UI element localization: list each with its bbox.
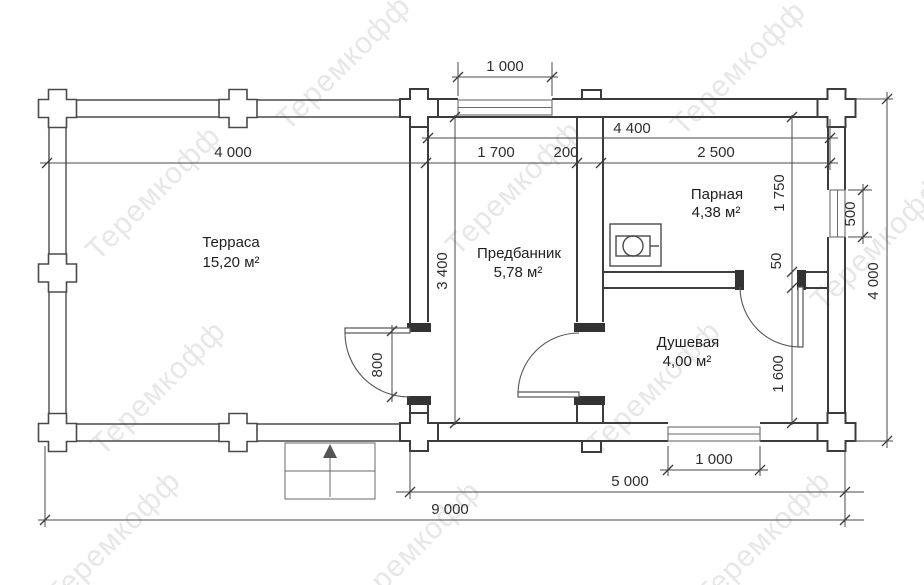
watermark-text: Теремкофф — [439, 114, 587, 262]
room-terrace-name: Терраса — [202, 234, 260, 251]
room-predbannik-area: 5,78 м² — [494, 264, 543, 281]
log-cross — [818, 413, 856, 451]
door-leaf-predbannik — [518, 392, 579, 397]
dim-label-terrace-width: 4 000 — [214, 144, 252, 161]
dim-label-wall: 200 — [553, 144, 578, 161]
log-cross — [818, 89, 856, 127]
dim-label-bottom-window: 1 000 — [695, 451, 733, 468]
dim-label-predbannik-width: 1 700 — [477, 144, 515, 161]
door-jamb — [407, 396, 431, 405]
dim-label-parnaya-depth: 1 750 — [771, 174, 788, 212]
log-cross — [39, 414, 77, 452]
log-cross — [39, 254, 77, 292]
dim-label-building-width: 5 000 — [611, 473, 649, 490]
dim-label-top-window: 1 000 — [486, 58, 524, 75]
floor-plan-drawing: Теремкофф Теремкофф Теремкофф Теремкофф … — [0, 0, 924, 585]
door-leaf-dushevaya — [798, 287, 803, 347]
stove-outline — [610, 224, 661, 266]
log-cross — [39, 90, 77, 128]
dimension-labels: 1 000 4 400 4 000 1 700 200 2 500 3 400 … — [214, 58, 882, 518]
log-notch-bottom — [582, 441, 601, 452]
log-cross — [219, 90, 257, 128]
room-terrace-area: 15,20 м² — [202, 254, 259, 271]
log-cross — [400, 89, 438, 127]
building-left-wall — [410, 99, 428, 441]
watermark-text: Теремкофф — [689, 464, 837, 585]
stove-circle — [623, 236, 643, 256]
dim-label-parnaya-width: 2 500 — [697, 144, 735, 161]
watermark-layer: Теремкофф Теремкофф Теремкофф Теремкофф … — [39, 0, 924, 585]
room-parnaya-area: 4,38 м² — [692, 204, 741, 221]
doors — [345, 287, 803, 397]
entrance-steps — [285, 443, 375, 499]
floor-plan-page: Теремкофф Теремкофф Теремкофф Теремкофф … — [0, 0, 924, 585]
dim-label-gap: 50 — [768, 253, 785, 270]
door-jamb — [574, 323, 605, 332]
watermark-text: Теремкофф — [39, 464, 187, 585]
entry-arrow-head — [323, 444, 337, 458]
watermark-text: Теремкофф — [664, 0, 812, 142]
stove — [610, 224, 661, 266]
door-jambs — [407, 270, 806, 405]
log-cross — [400, 413, 438, 451]
dim-label-terrace-door: 800 — [369, 352, 386, 377]
dimension-lines — [38, 62, 893, 527]
watermark-text: Теремкофф — [84, 314, 232, 462]
dim-label-dushevaya-depth: 1 600 — [770, 355, 787, 393]
log-notch-top — [582, 90, 601, 99]
log-cross — [219, 414, 257, 452]
stove-firebox — [616, 236, 650, 256]
door-leaf-terrace — [345, 328, 410, 333]
watermark-text: Теремкофф — [339, 474, 487, 585]
door-swing-dushevaya — [740, 287, 800, 347]
room-dushevaya-name: Душевая — [657, 334, 720, 351]
door-jamb — [407, 323, 431, 332]
dim-label-total-width: 9 000 — [431, 501, 469, 518]
dim-label-inner-width: 4 400 — [613, 120, 651, 137]
door-swing-predbannik — [518, 333, 579, 394]
dim-label-right-window: 500 — [842, 201, 859, 226]
room-parnaya-name: Парная — [691, 186, 743, 203]
dim-label-building-depth: 4 000 — [865, 262, 882, 300]
room-predbannik-name: Предбанник — [477, 245, 561, 262]
room-dushevaya-area: 4,00 м² — [663, 353, 712, 370]
dim-label-predbannik-depth: 3 400 — [434, 252, 451, 290]
